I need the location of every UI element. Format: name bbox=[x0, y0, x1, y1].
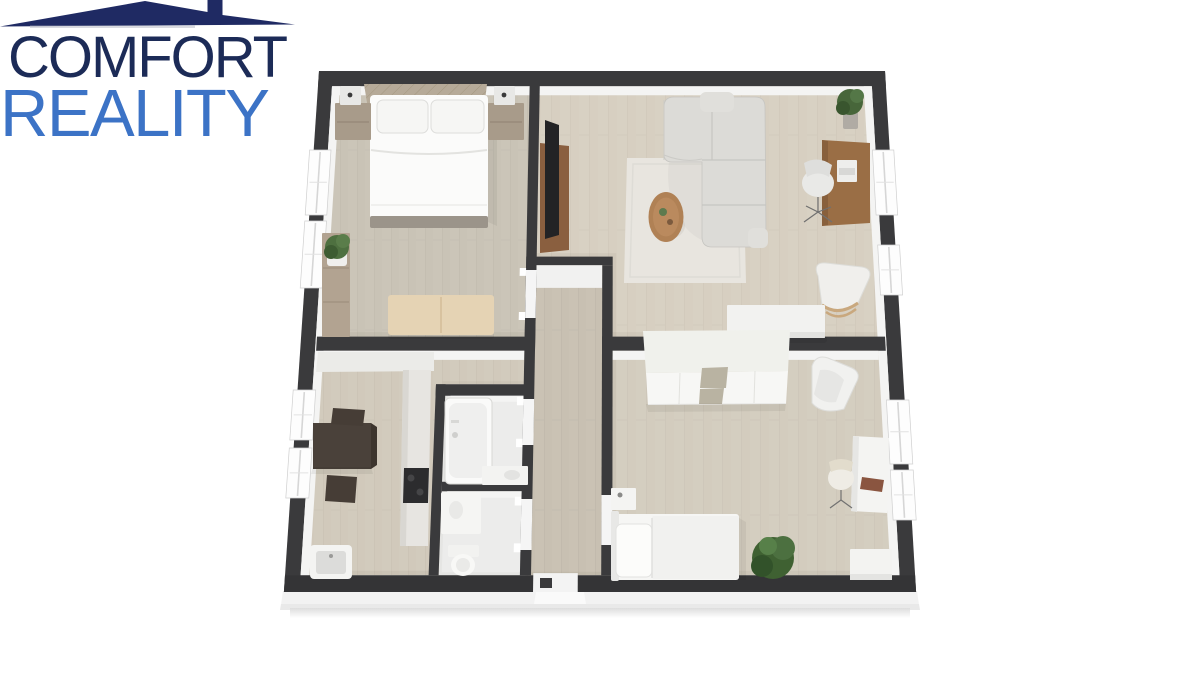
svg-text:REALITY: REALITY bbox=[0, 76, 270, 151]
